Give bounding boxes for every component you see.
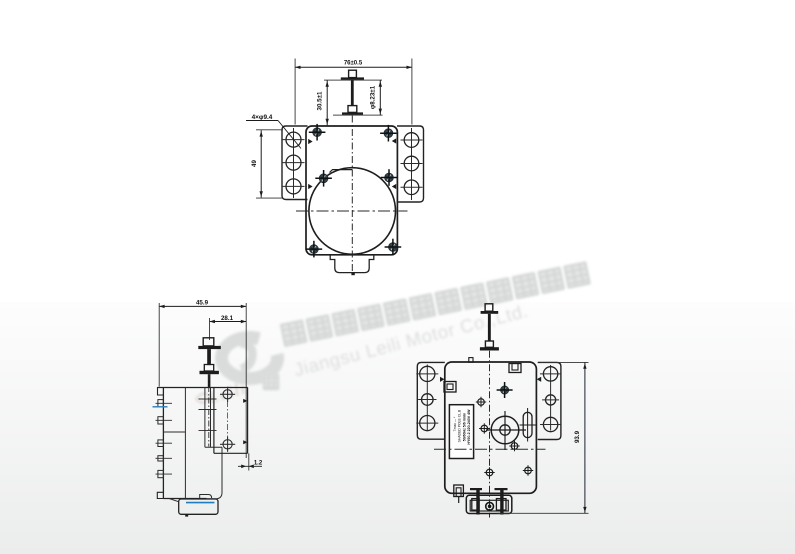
svg-text:28.1: 28.1: [221, 315, 234, 322]
svg-text:SHADED POLE CL.B: SHADED POLE CL.B: [458, 409, 462, 442]
svg-text:45.9: 45.9: [196, 300, 209, 307]
svg-text:Tmax — *: Tmax — *: [453, 416, 457, 431]
svg-text:φ8.23±1: φ8.23±1: [370, 85, 377, 109]
svg-text:1.2: 1.2: [254, 461, 263, 467]
svg-text:30.5±1: 30.5±1: [317, 91, 324, 110]
svg-text:4×φ9.4: 4×φ9.4: [252, 114, 273, 121]
svg-text:76±0.5: 76±0.5: [344, 61, 363, 67]
svg-text:93.9: 93.9: [574, 430, 581, 443]
svg-text:49: 49: [251, 160, 258, 167]
svg-text:50/60Hz 5/6 r/min: 50/60Hz 5/6 r/min: [462, 413, 466, 441]
svg-text:HY60-2 220-240V 4W: HY60-2 220-240V 4W: [467, 409, 471, 445]
